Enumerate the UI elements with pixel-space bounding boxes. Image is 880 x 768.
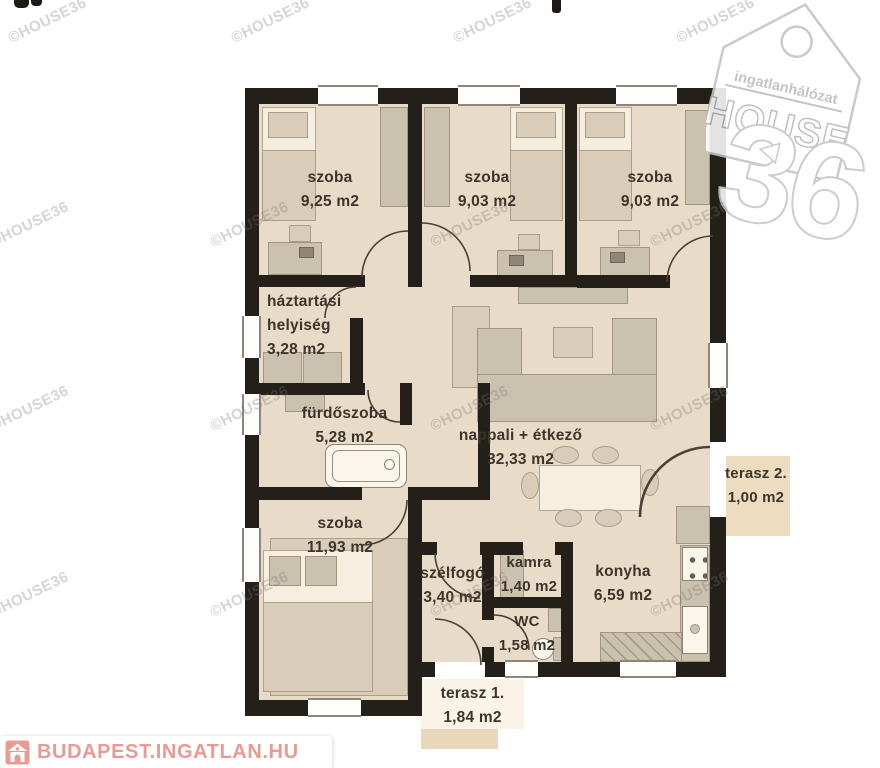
room-area: 9,03 m2 <box>585 190 715 214</box>
room-name: nappali + étkező <box>428 424 613 448</box>
room-name: terasz 1. <box>421 682 524 706</box>
room-label-szoba-3: szoba 9,03 m2 <box>585 166 715 214</box>
floorplan-page: szoba 9,25 m2 szoba 9,03 m2 szoba 9,03 m… <box>0 0 880 768</box>
room-area: 1,00 m2 <box>718 486 794 510</box>
room-area: 5,28 m2 <box>272 426 417 450</box>
room-label-furdoszoba: fürdőszoba 5,28 m2 <box>272 402 417 450</box>
door-arc <box>362 231 408 277</box>
room-label-nappali: nappali + étkező 32,33 m2 <box>428 424 613 472</box>
room-name: szoba <box>275 512 405 536</box>
door-arc <box>667 236 713 282</box>
room-name: szoba <box>585 166 715 190</box>
room-name: konyha <box>561 560 685 584</box>
room-area: 32,33 m2 <box>428 448 613 472</box>
footer-brand-bar: BUDAPEST.INGATLAN.HU <box>0 736 332 768</box>
footer-brand-text: BUDAPEST.INGATLAN.HU <box>37 741 299 764</box>
room-name: szoba <box>422 166 552 190</box>
room-name: helyiség <box>267 314 362 338</box>
door-arc <box>435 619 481 665</box>
room-label-szoba-4: szoba 11,93 m2 <box>275 512 405 560</box>
room-name: WC <box>485 610 569 634</box>
room-name: szoba <box>265 166 395 190</box>
room-area: 11,93 m2 <box>275 536 405 560</box>
room-area: 1,84 m2 <box>421 706 524 730</box>
room-label-haztartasi: háztartási helyiség 3,28 m2 <box>267 290 362 362</box>
room-name: háztartási <box>267 290 362 314</box>
room-label-terasz-2: terasz 2. 1,00 m2 <box>718 462 794 510</box>
room-name: fürdőszoba <box>272 402 417 426</box>
room-area: 3,28 m2 <box>267 338 362 362</box>
room-label-wc: WC 1,58 m2 <box>485 610 569 658</box>
room-name: terasz 2. <box>718 462 794 486</box>
cropped-text-fragment <box>31 0 42 6</box>
room-label-terasz-1: terasz 1. 1,84 m2 <box>421 682 524 730</box>
door-arc <box>640 447 710 517</box>
house36-logo: ingatlanhálózat HOUSE 36 <box>706 0 880 242</box>
ingatlan-house-icon <box>5 740 30 765</box>
cropped-text-fragment <box>14 0 29 8</box>
room-area: 1,58 m2 <box>485 634 569 658</box>
cropped-text-fragment <box>552 0 561 13</box>
